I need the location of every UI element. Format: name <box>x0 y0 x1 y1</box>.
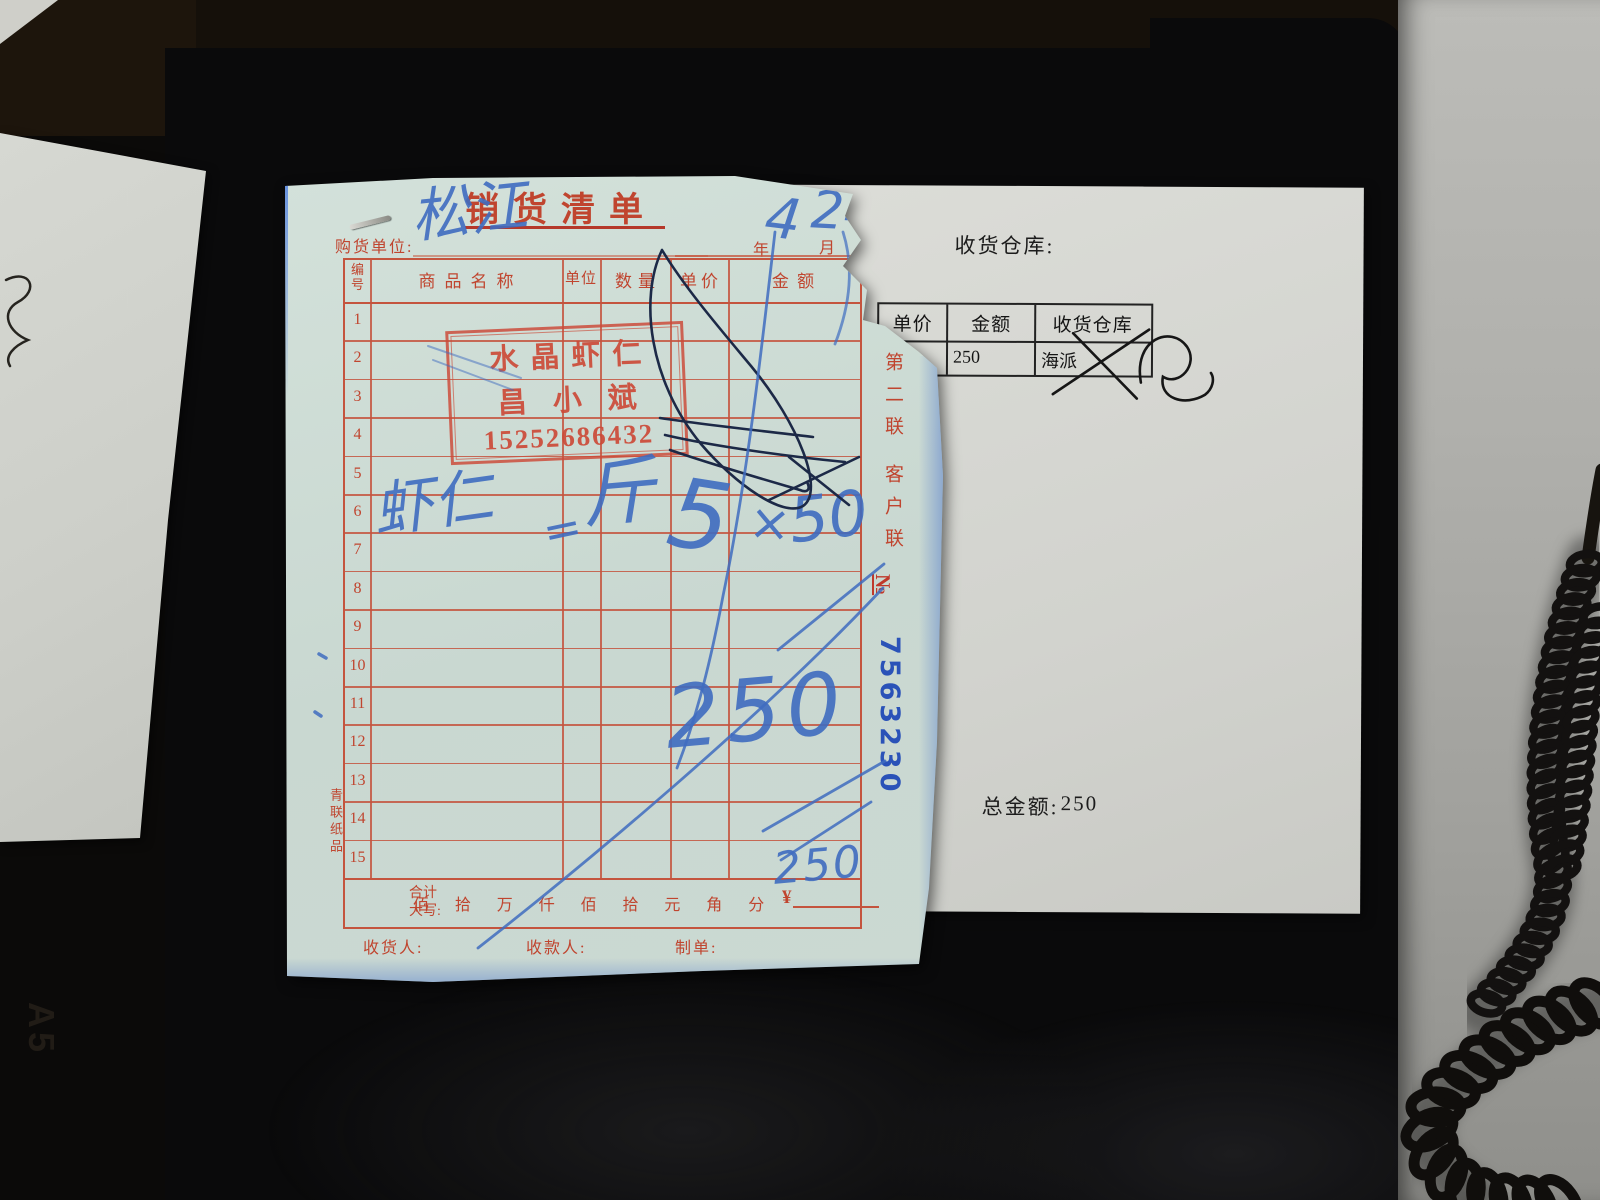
col-header-unit: 单位 <box>562 267 600 288</box>
receiver-label: 收货人: <box>363 934 423 958</box>
handwritten-price: 50 <box>786 481 872 552</box>
amount-unit-label: 佰 <box>581 891 597 915</box>
table-gridline <box>370 260 372 878</box>
handwritten-purchaser: 松江 <box>408 176 529 246</box>
row-number: 13 <box>345 772 370 790</box>
dyed-edge <box>919 356 943 956</box>
row-number: 1 <box>345 311 370 329</box>
row-number: 14 <box>345 810 370 828</box>
copy-label-2: 客户联 <box>879 464 906 560</box>
total-amount-label: 总金额: <box>982 791 1059 821</box>
warehouse-label: 收货仓库: <box>955 230 1055 261</box>
amount-unit-label: 万 <box>497 891 513 915</box>
table-gridline <box>728 260 730 878</box>
total-underline <box>793 906 879 908</box>
sales-receipt: 销货清单 购货单位: 年 月 编号 商品名称 单位 数量 单价 金 额 1234… <box>283 176 943 986</box>
handwritten-day: 24 <box>810 184 879 239</box>
purchaser-underline <box>413 255 708 257</box>
table-gridline <box>345 801 860 803</box>
amount-unit-label: 元 <box>664 891 680 915</box>
dyed-edge <box>283 958 933 984</box>
col-header-amount: 金 额 <box>728 267 860 292</box>
handwritten-amount: 250 <box>662 660 851 762</box>
table-gridline <box>345 571 860 573</box>
row-number: 7 <box>345 541 370 559</box>
col-header-warehouse: 收货仓库 <box>1036 310 1149 338</box>
col-header-product: 商品名称 <box>370 267 562 292</box>
serial-number: 7563230 <box>874 636 905 796</box>
table-gridline <box>345 609 860 611</box>
amount-unit-label: 角 <box>706 891 722 915</box>
paper-brand: 青联纸品 <box>326 788 345 856</box>
table-gridline <box>345 302 860 304</box>
row-number: 6 <box>345 503 370 521</box>
stamp-product: 水晶虾仁 <box>476 329 654 379</box>
row-number: 9 <box>345 618 370 636</box>
amount-unit-label: 拾 <box>455 891 471 915</box>
table-gridline <box>345 763 860 765</box>
row-number: 15 <box>345 849 370 867</box>
a5-marking: A5 <box>20 1002 62 1056</box>
dyed-edge <box>283 180 288 400</box>
desk-surface-right <box>1398 0 1600 1200</box>
col-header-price: 单价 <box>670 267 728 292</box>
table-gridline <box>345 648 860 650</box>
row-number: 10 <box>345 657 370 675</box>
table-gridline <box>345 840 860 842</box>
payee-label: 收款人: <box>526 934 586 958</box>
col-header-no: 编号 <box>345 263 370 293</box>
amount-unit-label: 分 <box>748 891 764 915</box>
handwritten-times: × <box>747 496 793 549</box>
preparer-label: 制单: <box>675 934 717 958</box>
copy-label-1: 第二联 <box>879 352 906 448</box>
amount-unit-label: 仟 <box>539 891 555 915</box>
stamp-name: 昌小斌 <box>471 373 664 423</box>
row-number: 8 <box>345 580 370 598</box>
scrap-paper <box>0 130 210 842</box>
total-amount-value: 250 <box>1061 791 1099 816</box>
cell-amount: 250 <box>953 347 980 368</box>
pen-squiggle <box>0 130 210 842</box>
vendor-stamp: 水晶虾仁 昌小斌 15252686432 <box>445 321 689 465</box>
row-number: 5 <box>345 465 370 483</box>
serial-no-symbol: № <box>870 574 895 595</box>
amount-unit-label: 佰 <box>413 891 429 915</box>
col-header-qty: 数量 <box>600 267 670 292</box>
row-number: 11 <box>345 695 370 713</box>
cell-warehouse: 海派 <box>1041 347 1077 373</box>
purchaser-label: 购货单位: <box>335 233 413 257</box>
row-number: 2 <box>345 349 370 367</box>
handwritten-total: 250 <box>771 840 864 892</box>
amount-unit-label: 拾 <box>623 891 639 915</box>
staple <box>349 215 391 230</box>
row-number: 4 <box>345 426 370 444</box>
row-number: 12 <box>345 733 370 751</box>
handwritten-month: 4 <box>762 190 804 250</box>
col-header-amount: 金额 <box>948 310 1034 337</box>
handwritten-item: 虾仁 <box>369 466 496 542</box>
handwritten-unit: 斤 <box>578 453 658 533</box>
photo-of-receipts: A5 收货仓库: 单价 金额 收货仓库 250 海派 <box>0 0 1600 1200</box>
row-number: 3 <box>345 388 370 406</box>
date-underline <box>675 255 861 257</box>
